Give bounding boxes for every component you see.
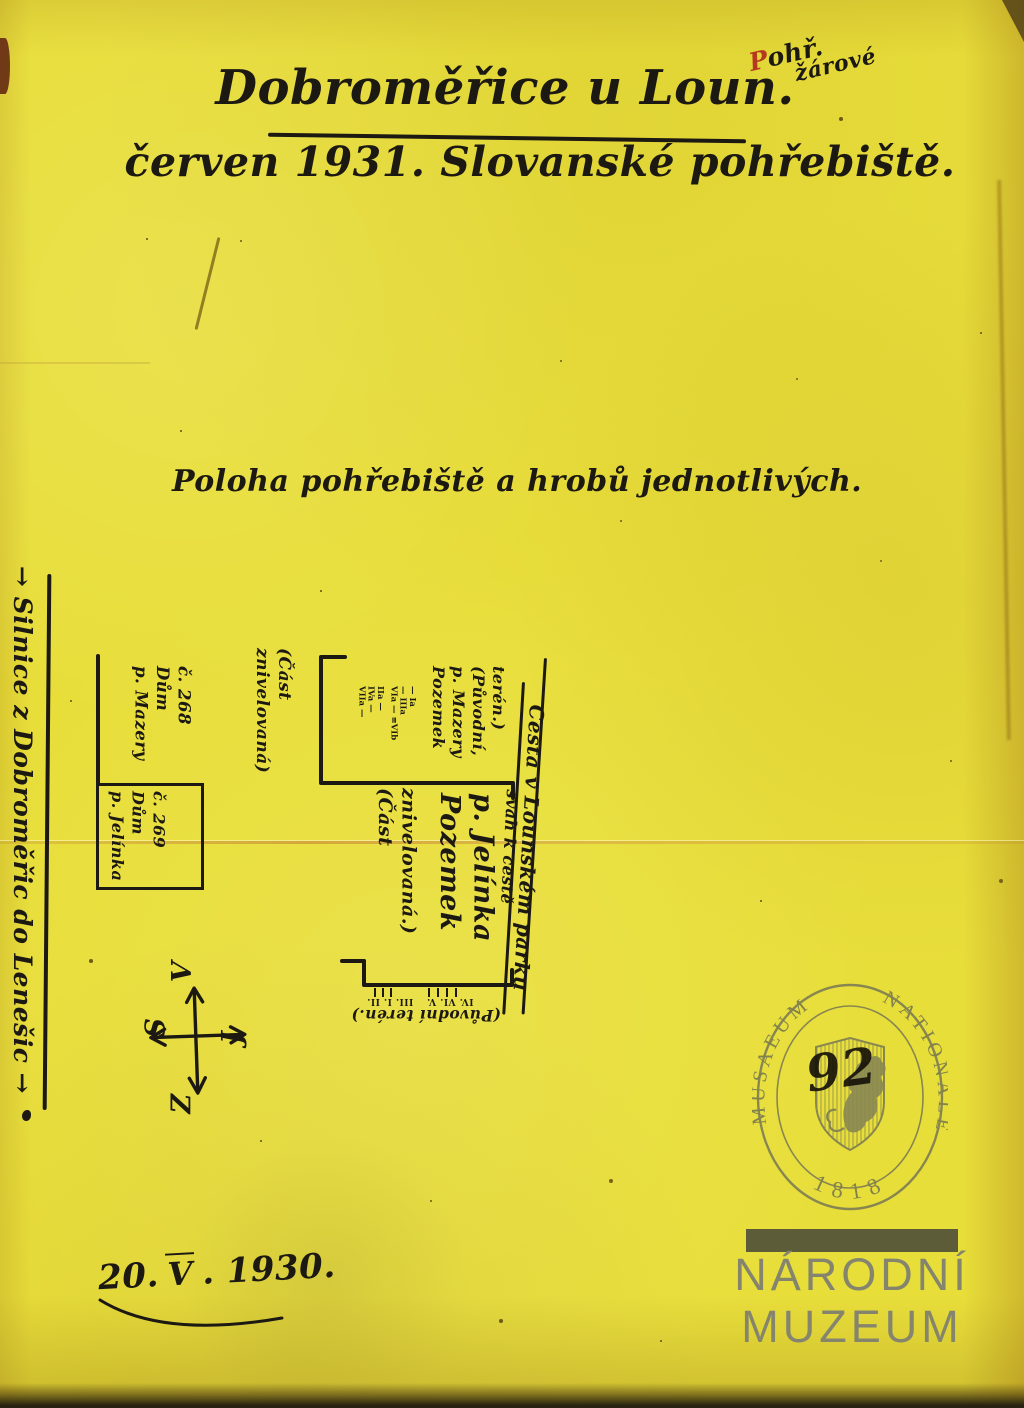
jelinek-plot-line: p. Jelínka [466,793,500,985]
grave-mark: IIa — [375,686,384,750]
document-title: Dobroměřice u Loun. [160,60,850,116]
original-terrain-label: (Původní terén.) [350,1006,502,1025]
house-268-line: p. Mazery [130,666,151,778]
leveled-part-line: (Část [273,648,295,806]
road-left-label: → Silnice z Dobroměřic do Lenešic → [8,566,37,1118]
grave-marks-lower-a: III. I. II. [366,996,414,1006]
house-269-line: p. Jelínka [106,791,127,883]
jelinek-note-line: (Část [372,788,396,936]
mazera-plot-line: (Původní, [468,666,488,768]
section-heading: Poloha pohřebiště a hrobů jednotlivých. [172,464,862,499]
grave-marks-lower-b: IV. VI. V. [420,996,480,1006]
boundary-vertical-line [319,656,323,784]
house-268-label: č. 268 Dům p. Mazery [130,666,194,778]
grave-mark: IVa — [365,686,374,750]
compass-south-label: J [217,1031,248,1044]
house-268-line: č. 268 [173,666,194,778]
small-crease [0,362,150,364]
date-note: 20.V. 1930. [97,1246,336,1298]
document-subtitle: červen 1931. Slovanské pohřebiště. [100,138,980,186]
compass-east-label: V [167,961,198,982]
watermark-text: NÁRODNÍ MUZEUM [700,1249,1004,1353]
right-edge-stain [997,180,1011,740]
inventory-number: 92 [802,1035,880,1103]
grave-mark: VIIa — [356,686,365,750]
paper-tear [195,237,221,330]
jelinek-plot-note-label: (Část znivelovaná.) [372,788,420,936]
top-right-corner-shadow [1002,0,1024,42]
scanned-document-page: Pohř. žárové Dobroměřice u Loun. červen … [0,0,1024,1408]
seal-year-text: 1818 [810,1169,892,1204]
mazera-plot-line: p. Mazery [448,666,468,768]
ink-blot [22,1110,31,1121]
date-year: . 1930. [201,1246,337,1293]
house-269-line: Dům [127,791,148,883]
date-underline-swash [92,1296,292,1334]
lower-boundary-step-v [362,959,366,986]
compass-west-label: Z [167,1093,198,1113]
plot-west-fence-line [96,654,100,785]
boundary-top-stub [319,655,347,659]
date-month-roman: V [165,1252,196,1293]
house-269-label: č. 269 Dům p. Jelínka [99,786,175,888]
watermark-line-1: NÁRODNÍ [700,1249,1004,1301]
boundary-horizontal-line [319,781,515,785]
house-268-line: Dům [151,666,172,778]
compass-north-label: S [141,1018,172,1038]
date-day: 20. [97,1255,160,1298]
svg-text:1818: 1818 [810,1169,892,1204]
jelinek-plot-label: Pozemek p. Jelínka [432,793,500,985]
paper-speckles [146,238,148,240]
leveled-part-line: znivelovaná) [251,648,273,806]
mazera-plot-label: Pozemek p. Mazery (Původní, terén.) [428,666,508,768]
leveled-part-label: (Část znivelovaná) [251,648,295,806]
lower-boundary-line [362,983,514,987]
bottom-scan-shadow [0,1383,1024,1408]
jelinek-plot-line: Pozemek [432,793,466,985]
watermark-line-2: MUZEUM [700,1301,1004,1353]
jelinek-note-line: znivelovaná.) [396,788,420,936]
mazera-plot-line: terén.) [488,666,508,768]
house-269-rect: č. 269 Dům p. Jelínka [96,783,204,890]
grave-marks-upper-a: VIIa — IVa — IIa — [356,686,384,750]
mazera-plot-line: Pozemek [428,666,448,768]
house-269-line: č. 269 [148,791,169,883]
top-left-corner-mark [0,38,10,94]
